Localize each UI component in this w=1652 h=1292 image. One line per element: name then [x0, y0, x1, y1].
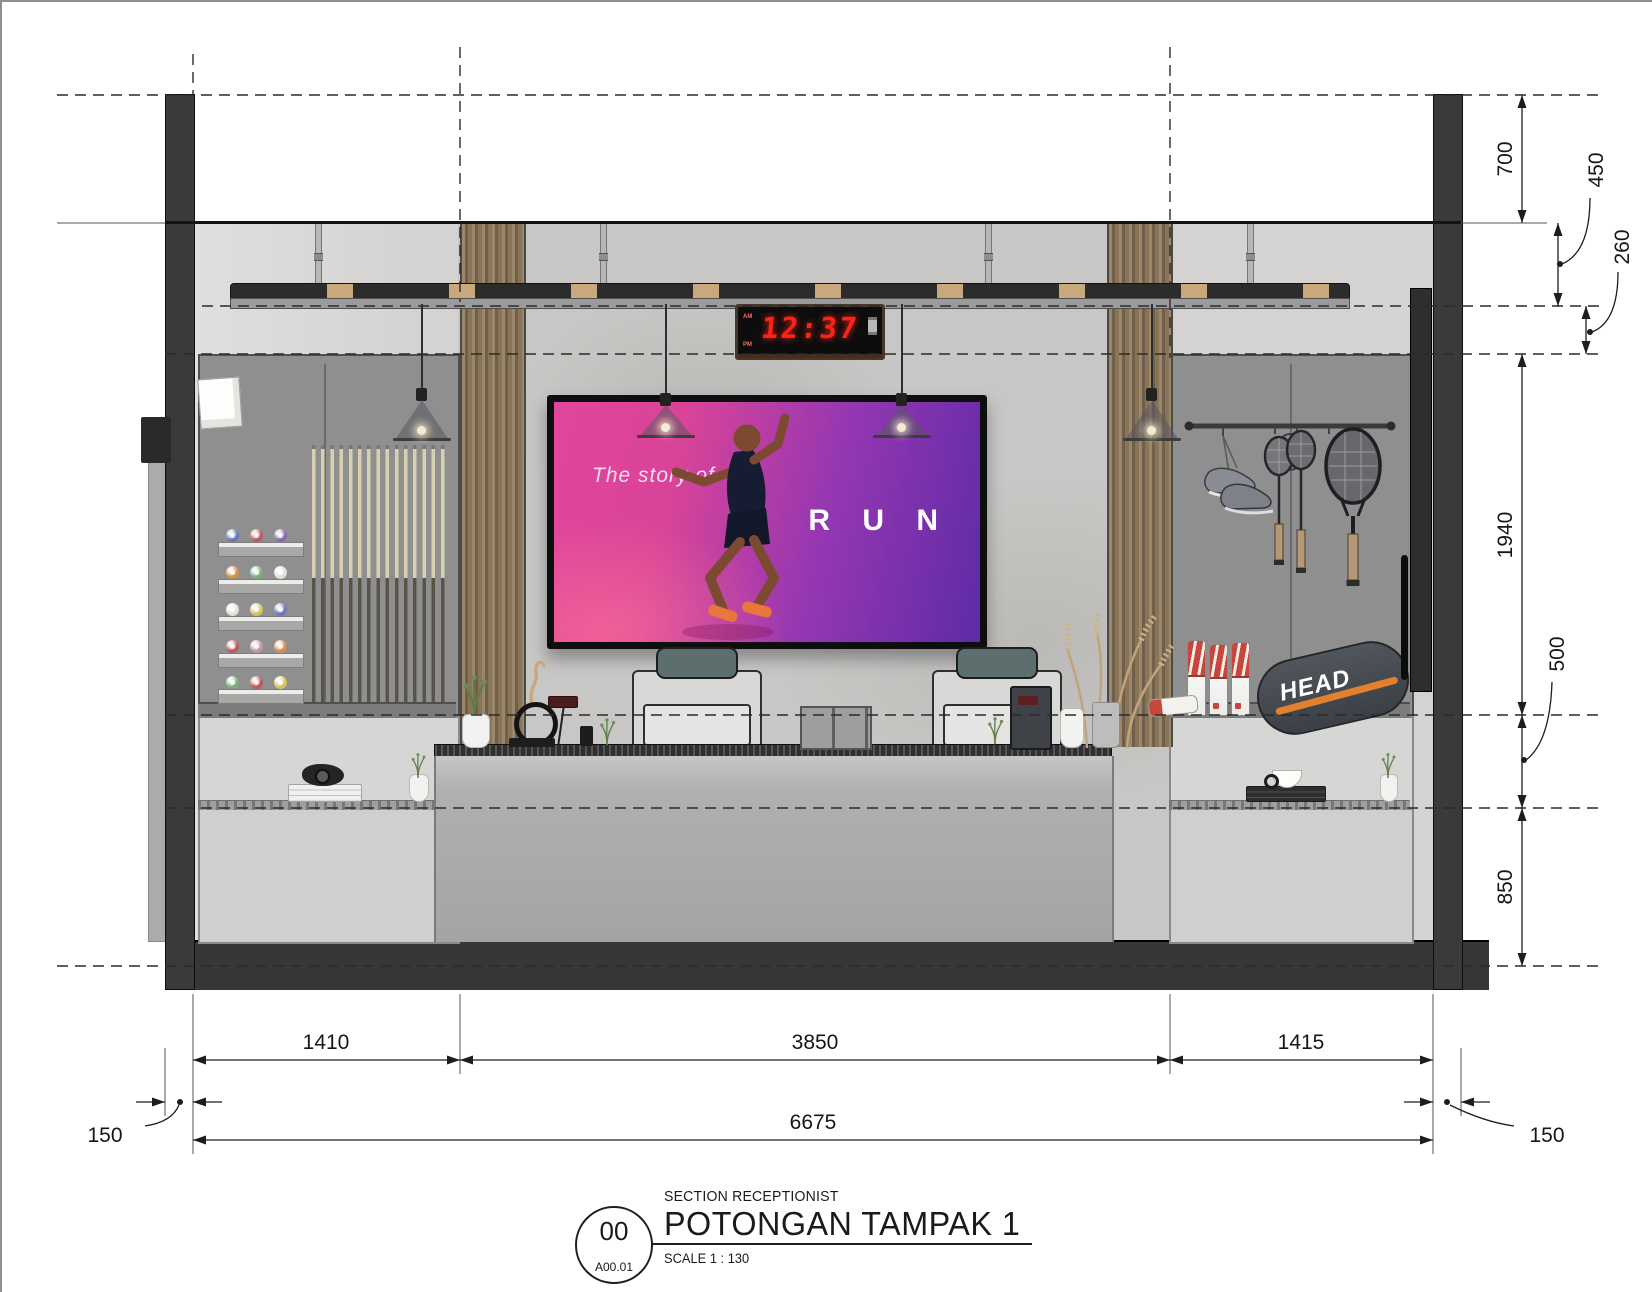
pendant-bulb — [417, 426, 426, 435]
shelf-plant — [1370, 748, 1406, 778]
camera-object — [302, 764, 344, 786]
pendant-rim — [1123, 438, 1181, 441]
billiard-ball — [250, 566, 263, 579]
pendant-rim — [873, 435, 931, 438]
hanger-rod — [985, 223, 992, 287]
shuttlecock-tube — [1231, 642, 1250, 716]
drawing-subtitle: SECTION RECEPTIONIST — [664, 1188, 839, 1205]
pendant-bulb — [661, 423, 670, 432]
ceiling-line — [165, 221, 1461, 224]
dim-150-right: 150 — [1529, 1124, 1564, 1147]
book-stack — [288, 784, 362, 802]
pampas-vase — [1092, 702, 1120, 748]
side-door-panel — [1410, 288, 1432, 692]
dim-700: 700 — [1494, 141, 1517, 176]
tv-screen: The story of R U N — [554, 402, 980, 642]
pendant-cord — [1151, 304, 1153, 392]
left-lower-panel — [198, 808, 460, 944]
desk-plant — [448, 666, 500, 718]
pendant-bulb — [897, 423, 906, 432]
desk-plant-small — [594, 712, 620, 746]
billiard-ball — [250, 676, 263, 689]
ball-shelf — [218, 653, 304, 668]
dim-850: 850 — [1494, 869, 1517, 904]
pampas-vase — [1060, 708, 1084, 748]
desk-phone — [580, 726, 593, 746]
dim-260: 260 — [1611, 229, 1634, 264]
ball-shelf — [218, 579, 304, 594]
drawing-scale: SCALE 1 : 130 — [664, 1250, 749, 1266]
pendant-holder — [416, 388, 427, 401]
ball-shelf — [218, 616, 304, 631]
billiard-ball — [226, 640, 239, 653]
pendant-bulb — [1147, 426, 1156, 435]
ball-shelf — [218, 542, 304, 557]
towel — [197, 377, 242, 430]
desk-books — [800, 706, 872, 750]
pendant-holder — [896, 393, 907, 406]
pendant-rim — [393, 438, 451, 441]
billiard-ball — [274, 529, 287, 542]
figure-sculpture — [520, 656, 548, 706]
clock-time: 12:37 — [736, 307, 884, 349]
dim-6675: 6675 — [790, 1111, 837, 1134]
detail-bubble: 00 A00.01 — [575, 1206, 653, 1284]
billiard-ball — [226, 529, 239, 542]
shelf-vase — [409, 774, 429, 802]
clock-calendar-icon — [868, 317, 877, 335]
tv-headline: R U N — [808, 504, 950, 538]
left-cabinet-base — [198, 702, 456, 718]
floor-slab — [165, 940, 1489, 990]
billiard-ball — [226, 566, 239, 579]
hanger-rod — [600, 223, 607, 287]
clock-frame-base — [738, 354, 882, 358]
desk-plant-small — [982, 710, 1008, 746]
book-stack — [1246, 786, 1326, 802]
dim-1415: 1415 — [1278, 1031, 1325, 1054]
billiard-cue-grips — [308, 578, 446, 702]
dim-1940: 1940 — [1494, 512, 1517, 559]
detail-number: 00 — [577, 1216, 651, 1247]
left-wall-bracket — [141, 417, 171, 463]
billiard-ball — [274, 640, 287, 653]
dim-500: 500 — [1546, 636, 1569, 671]
ball-shelf — [218, 689, 304, 704]
dim-3850: 3850 — [792, 1031, 839, 1054]
billiard-ball — [250, 640, 263, 653]
racket-bag-brand: HEAD — [1277, 664, 1353, 707]
billiard-ball — [226, 676, 239, 689]
billiard-ball — [250, 529, 263, 542]
drawing-title: POTONGAN TAMPAK 1 — [664, 1205, 1020, 1243]
billiard-ball — [226, 603, 239, 616]
hanger-rod — [1247, 223, 1254, 287]
dim-450: 450 — [1585, 152, 1608, 187]
shuttlecock-tube — [1209, 644, 1228, 716]
pendant-holder — [660, 393, 671, 406]
shelf-plant — [400, 748, 436, 778]
reception-chair — [632, 670, 762, 750]
right-lower-panel — [1169, 808, 1414, 944]
hanger-rod — [315, 223, 322, 287]
wall-column-right — [1433, 94, 1463, 990]
pendant-cord — [901, 304, 903, 397]
billiard-ball — [274, 566, 287, 579]
reception-counter — [434, 756, 1114, 942]
door-handle — [1401, 555, 1408, 680]
sheet-code: A00.01 — [577, 1260, 651, 1274]
billiard-ball — [250, 603, 263, 616]
wall-column-left — [165, 94, 195, 990]
chair-headrest — [956, 647, 1038, 679]
drawing-sheet: AM PM 12:37 The story of R U N — [0, 0, 1652, 1292]
sculpture-base — [509, 738, 555, 747]
shelf-vase — [1380, 774, 1398, 802]
runner-figure — [650, 408, 810, 642]
billiard-ball — [274, 676, 287, 689]
pendant-cord — [421, 304, 423, 392]
digital-clock: AM PM 12:37 — [735, 304, 885, 360]
dim-1410: 1410 — [303, 1031, 350, 1054]
pendant-holder — [1146, 388, 1157, 401]
pendant-rim — [637, 435, 695, 438]
dim-150-left: 150 — [87, 1124, 122, 1147]
desk-vase — [462, 714, 490, 748]
billiard-ball — [274, 603, 287, 616]
chair-headrest — [656, 647, 738, 679]
pendant-cord — [665, 304, 667, 397]
